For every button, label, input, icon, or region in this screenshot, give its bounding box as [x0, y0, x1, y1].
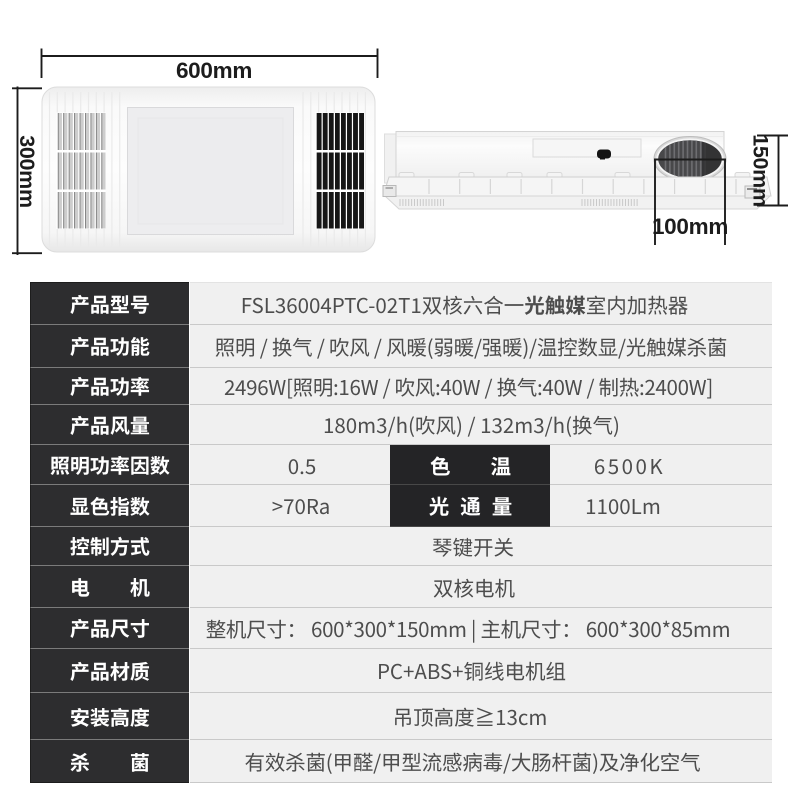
svg-text:600mm: 600mm	[176, 58, 252, 83]
svg-text:300mm: 300mm	[15, 135, 39, 208]
svg-text:100mm: 100mm	[652, 214, 728, 239]
svg-text:150mm: 150mm	[749, 134, 773, 207]
